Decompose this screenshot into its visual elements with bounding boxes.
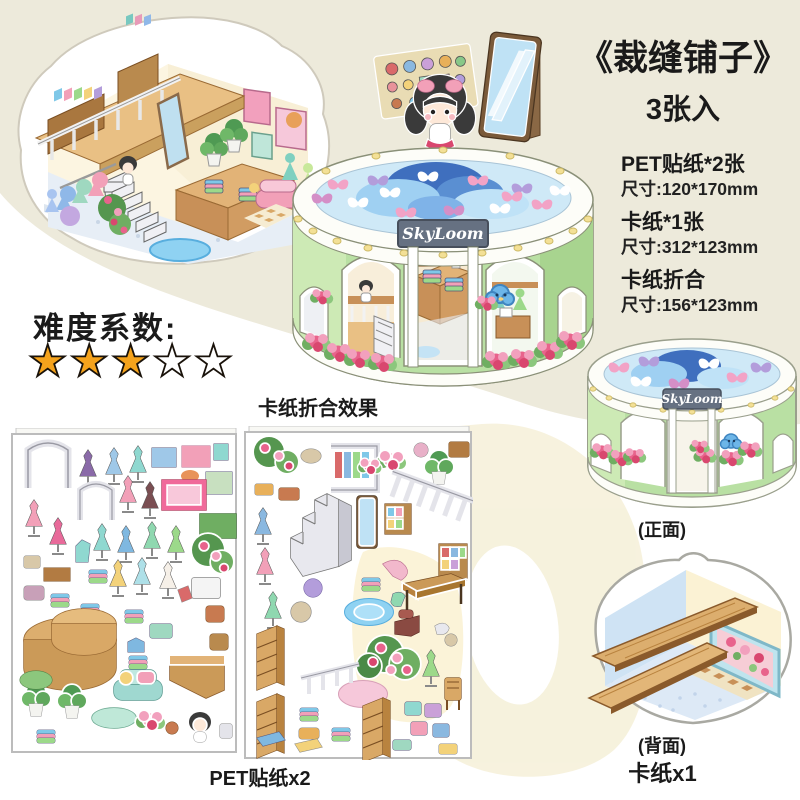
spec-name: 卡纸*1张 [621, 210, 800, 236]
product-subtitle: 3张入 [566, 86, 800, 128]
star-filled-icons: ★★★ [28, 337, 152, 386]
skyloom-sign-text: SkyLoom [402, 224, 483, 243]
spec-item: 卡纸折合 尺寸:156*123mm [621, 268, 800, 317]
spec-size: 尺寸:120*170mm [621, 178, 800, 201]
spec-size: 尺寸:312*123mm [621, 236, 800, 259]
sofa-icon [114, 670, 162, 700]
card-count-label: 卡纸x1 [575, 756, 750, 788]
spec-name: PET贴纸*2张 [621, 152, 800, 178]
pet-sticker-sheet-2 [243, 426, 473, 760]
spec-item: PET贴纸*2张 尺寸:120*170mm [621, 152, 800, 201]
star-empty-icons: ★★ [152, 337, 235, 386]
accessory-stickers [368, 22, 564, 160]
folded-effect-caption: 卡纸折合效果 [233, 392, 403, 421]
card-back-illustration [585, 546, 800, 732]
standing-mirror-icon [479, 32, 551, 143]
card-front-illustration: SkyLoom [583, 337, 800, 513]
product-title: 《裁缝铺子》 [566, 40, 800, 79]
spec-item: 卡纸*1张 尺寸:312*123mm [621, 210, 800, 259]
back-label: (背面) [582, 732, 742, 758]
difficulty-stars: ★★★★★ [28, 340, 258, 384]
spec-size: 尺寸:156*123mm [621, 294, 800, 317]
spec-name: 卡纸折合 [621, 268, 800, 294]
spec-list: PET贴纸*2张 尺寸:120*170mm 卡纸*1张 尺寸:312*123mm… [621, 143, 800, 317]
pet-sticker-sheet-1 [10, 428, 238, 754]
skyloom-sign-text-front: SkyLoom [661, 392, 722, 406]
front-label: (正面) [582, 516, 742, 542]
pet-sheet-label: PET贴纸x2 [150, 762, 370, 791]
mirror-sticker-icon [357, 496, 377, 548]
folded-shop-illustration: SkyLoom [286, 146, 600, 398]
